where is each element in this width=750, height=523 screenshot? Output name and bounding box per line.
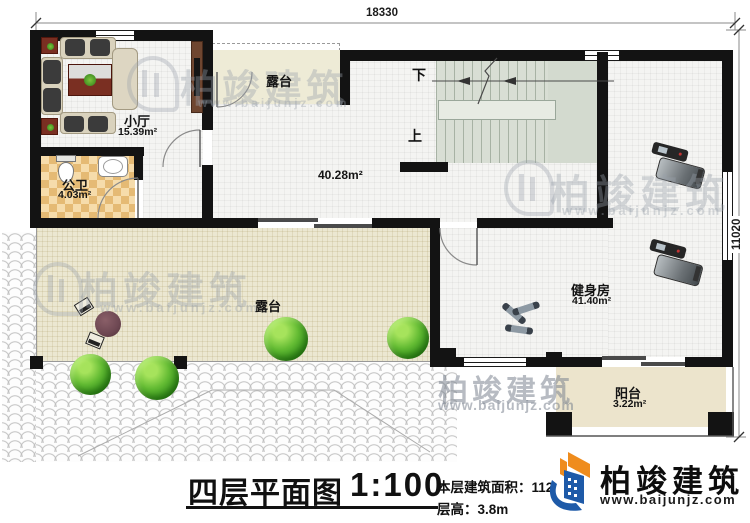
sliding-door-panel [258, 218, 318, 222]
sofa-cushion [90, 39, 110, 56]
column [546, 352, 562, 367]
dimension-tick [31, 18, 740, 28]
area-label-gym: 41.40m² [572, 295, 611, 307]
watermark-logo-icon [33, 262, 83, 316]
company-logo-url: www.baijunjz.com [600, 492, 736, 507]
tree [387, 317, 429, 359]
room-label-terrace-top: 露台 [266, 71, 292, 90]
floor-area-text: 本层建筑面积：112 [437, 476, 553, 496]
toilet-tank [56, 155, 76, 162]
column [30, 356, 43, 369]
sliding-door-panel [641, 362, 685, 366]
wall-segment [400, 162, 448, 172]
wall-segment [430, 228, 440, 360]
area-label-bathroom: 4.03m² [58, 189, 91, 201]
roof-band-left [2, 232, 36, 462]
sliding-door-panel [314, 224, 374, 228]
tree [70, 354, 111, 395]
area-label-main-hall: 40.28m² [318, 168, 363, 182]
wall-segment [30, 218, 260, 228]
sofa-cushion [65, 39, 85, 56]
column [430, 348, 456, 360]
side-table [41, 118, 58, 135]
watermark-url: www.baijunjz.com [100, 300, 260, 315]
area-label-balcony: 3.22m² [613, 398, 646, 410]
tree [135, 356, 179, 400]
column [546, 412, 572, 436]
wall-segment [340, 50, 733, 61]
wall-segment [134, 152, 143, 180]
wall-segment [722, 260, 733, 367]
wall-segment [30, 30, 41, 228]
sofa-cushion [43, 60, 61, 84]
side-table [41, 37, 58, 54]
floor-plan-canvas: 柏竣建筑 www.baijunjz.com 柏竣建筑 www.baijunjz.… [0, 0, 750, 523]
table-plant [84, 74, 96, 86]
floor-inner-hall [143, 152, 203, 218]
sliding-door-panel [602, 356, 646, 360]
plan-scale: 1:100 [350, 466, 444, 504]
watermark-url: www.baijunjz.com [438, 397, 575, 413]
company-logo-icon [538, 452, 596, 514]
stair-up-label: 上 [408, 126, 422, 146]
column [708, 412, 734, 436]
stair-down-label: 下 [412, 65, 426, 85]
title-underline [186, 506, 438, 509]
sink-basin [103, 159, 123, 174]
watermark-logo-icon [127, 56, 179, 112]
sofa-cushion [88, 116, 108, 132]
wall-segment [30, 147, 144, 156]
wall-segment [372, 218, 440, 228]
area-label-small-hall: 15.39m² [118, 126, 157, 138]
sofa-cushion [64, 116, 84, 132]
dimension-top: 18330 [363, 7, 401, 19]
watermark-url: www.baijunjz.com [562, 203, 722, 218]
wall-segment [722, 50, 733, 172]
dimension-right: 11020 [731, 216, 743, 253]
floor-height-text: 层高：3.8m [437, 498, 508, 518]
watermark-url: www.baijunjz.com [198, 96, 350, 110]
tree [264, 317, 308, 361]
sofa-cushion [43, 88, 61, 112]
watermark-logo-icon [504, 160, 554, 216]
room-label-terrace-main: 露台 [255, 296, 281, 315]
wall-segment [685, 357, 733, 367]
stair-landing-bar [438, 100, 556, 120]
